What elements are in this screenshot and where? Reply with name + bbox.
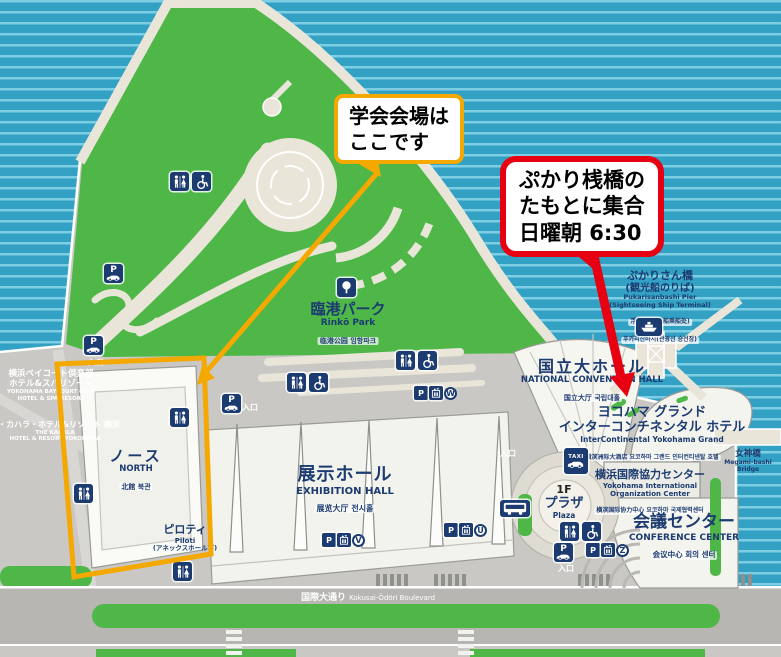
meeting-callout: ぷかり桟橋の たもとに集合 日曜朝 6:30 [500,156,664,257]
parking-icon: P [322,533,336,547]
parking-icon: P [414,386,428,400]
elevator-icon [601,543,615,557]
label-rinko-park: 臨港パーク Rinkō Park 临港公园 임항파크 [310,301,385,347]
toilet-icon [560,522,579,541]
parking-badge-z: Z [616,544,629,557]
label-north-building: ノース NORTH 北館 북관 [109,448,162,493]
toilet-icon [396,351,415,370]
parking-badge-v: V [352,534,365,547]
toilet-icon [287,373,306,392]
wheelchair-icon [309,373,328,392]
pacifico-yokohama-map: 臨港パーク Rinkō Park 临港公园 임항파크 国立大ホール NATION… [0,0,781,657]
parking-icon: P [84,336,103,355]
label-plaza: 1F プラザ Plaza [544,484,583,520]
label-megami-bridge: 女神橋 Megami-bashi Bridge [724,450,771,474]
toilet-icon [74,484,93,503]
toilet-icon [173,562,192,581]
wheelchair-icon [192,172,211,191]
parking-icon: P [554,543,573,562]
elevator-icon [429,386,443,400]
bus-icon [500,500,530,517]
label-piloti: ピロティ Piloti (アネックスホール下) [153,524,217,552]
taxi-icon: TAXI [564,448,588,474]
parking-icon: P [104,264,123,283]
elevator-icon [337,533,351,547]
toilet-icon [170,408,189,427]
venue-callout: 学会会場は ここです [334,94,464,164]
label-conference-center: 会議センター CONFERENCE CENTER 会议中心 회의 센터 [629,513,739,561]
label-entrance-plaza-parking: 入口 [558,564,574,574]
parking-badge-w: W [444,387,457,400]
label-baycourt-hotel: 横浜ベイコート倶楽部 ホテル&スパリゾート YOKOHAMA BAYCOURT … [7,369,95,403]
label-entrance-plaza: 入口 [500,449,516,459]
label-entrance-exhibition: 入口 [242,403,258,413]
label-exhibition-hall: 展示ホール EXHIBITION HALL 展览大厅 전시홀 [296,465,394,516]
label-entrance-west: 入口 [88,358,104,368]
wheelchair-icon [418,351,437,370]
wheelchair-icon [582,522,601,541]
toilet-icon [170,172,189,191]
label-national-convention-hall: 国立大ホール NATIONAL CONVENTION HALL 国立大厅 국립대… [521,358,663,405]
parking-icon: P [222,394,241,413]
parking-badge-u: U [474,524,487,537]
tree-icon [337,278,356,297]
parking-icon: P [444,523,458,537]
label-boulevard: 国際大通り Kokusai-Ōdōri Boulevard [301,593,435,604]
label-kahala-hotel: ザ・カハラ・ホテル&リゾート 横浜 THE KAHALA HOTEL & RES… [0,420,120,443]
label-organization-center: 横浜国際協力センター Yokohama International Organi… [594,469,705,516]
ship-icon [636,318,662,336]
elevator-icon [459,523,473,537]
parking-icon: P [586,543,600,557]
